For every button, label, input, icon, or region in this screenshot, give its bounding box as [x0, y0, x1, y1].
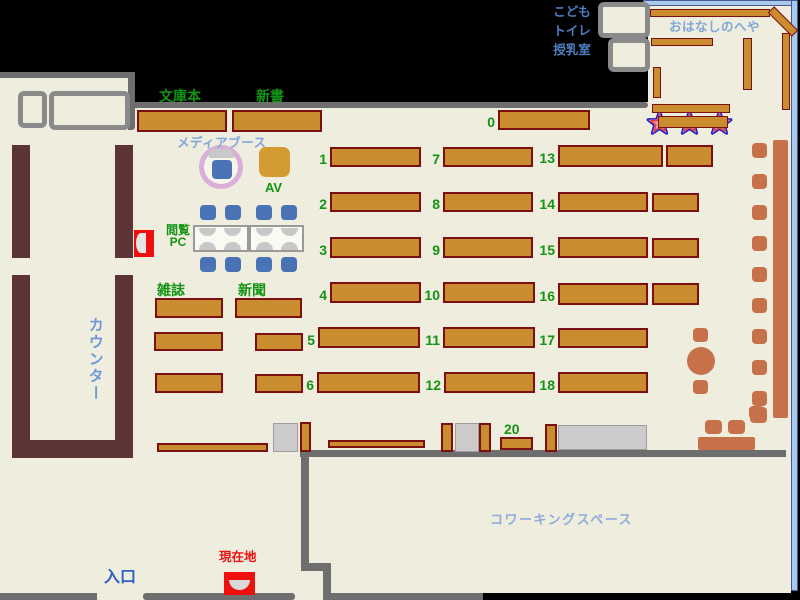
shelf-6: [317, 372, 420, 393]
shelf-label-3: 3: [297, 240, 327, 260]
shelf-label-16: 16: [525, 286, 555, 306]
wall-bottom-2: [143, 593, 295, 600]
window-wall-right: [791, 0, 798, 591]
stool: [752, 236, 767, 251]
reading-table: [698, 437, 755, 450]
shelf-label-20: 20: [504, 419, 530, 439]
story-room-shelf: [658, 116, 728, 128]
stool: [752, 143, 767, 158]
shelf-11: [443, 327, 535, 348]
shelf-label-8: 8: [410, 194, 440, 214]
bookshelf: [479, 423, 491, 452]
top-black-band: [135, 72, 648, 102]
wall-bottom-3: [323, 593, 483, 600]
shelf-label-12: 12: [411, 375, 441, 395]
bookshelf: [157, 443, 268, 452]
shelf-15: [558, 237, 648, 258]
shelf-1: [330, 147, 421, 167]
chair: [200, 205, 216, 220]
bookshelf: [255, 374, 303, 393]
shelf-label-14: 14: [525, 194, 555, 214]
bookshelf: [232, 110, 322, 132]
small-room: [49, 91, 130, 130]
label-av: AV: [265, 179, 282, 198]
stool: [752, 298, 767, 313]
shelf-12: [444, 372, 535, 393]
counter-segment: [12, 275, 30, 458]
small-room: [18, 91, 47, 128]
chair: [200, 257, 216, 272]
stool: [749, 406, 764, 419]
stool: [728, 420, 745, 434]
counter-segment: [12, 145, 30, 258]
shelf-4: [330, 282, 421, 303]
bookshelf: [652, 238, 699, 258]
bookshelf: [235, 298, 302, 318]
label-counter: カウンター: [84, 317, 106, 417]
shelf-label-7: 7: [410, 149, 440, 169]
label-kids-toilet-nursing: こども トイレ 授乳室: [546, 3, 598, 59]
bookshelf: [300, 422, 311, 452]
stool: [752, 360, 767, 375]
wall-bottom-1: [0, 593, 97, 600]
reading-table: [773, 140, 788, 418]
wall-coworking-left: [301, 450, 309, 570]
stool: [752, 174, 767, 189]
shelf-label-17: 17: [525, 330, 555, 350]
label-browsing-pc: 閲覧 PC: [163, 224, 193, 248]
library-floor-map: こども トイレ 授乳室 おはなしのへや 文庫本 新書 メディアブース AV 閲覧…: [0, 0, 800, 600]
shelf-label-11: 11: [410, 330, 440, 350]
story-room-shelf: [653, 67, 661, 98]
counter-segment: [115, 145, 133, 258]
security-gate-sensor: [136, 233, 146, 253]
label-media-booth: メディアブース: [177, 134, 267, 152]
chair: [225, 257, 241, 272]
chair: [281, 205, 297, 220]
shelf-label-18: 18: [525, 375, 555, 395]
bookshelf: [666, 145, 713, 167]
label-story-room: おはなしのへや: [669, 18, 760, 36]
wall-top-left-horizontal: [0, 72, 135, 78]
shelf-9: [443, 237, 533, 258]
shelf-13: [558, 145, 663, 167]
shelf-14: [558, 192, 648, 212]
label-entrance: 入口: [104, 566, 136, 589]
pc-monitor: [224, 242, 241, 250]
shelf-3: [330, 237, 421, 258]
pc-monitor: [281, 242, 298, 250]
story-room-shelf: [650, 9, 770, 17]
stool: [693, 380, 708, 394]
round-table: [687, 347, 715, 375]
label-paperback: 文庫本: [159, 86, 201, 106]
shelf-label-1: 1: [297, 149, 327, 169]
bookshelf: [155, 373, 223, 393]
shelf-2: [330, 192, 421, 212]
bookshelf: [441, 423, 453, 452]
bookshelf: [328, 440, 425, 448]
bookshelf: [154, 332, 223, 351]
shelf-label-2: 2: [297, 194, 327, 214]
pc-monitor: [256, 242, 273, 250]
shelf-5: [318, 327, 420, 348]
bottom-right-black-band: [483, 593, 800, 600]
counter-segment: [115, 275, 133, 458]
wall-top-long: [135, 102, 648, 108]
counter-segment: [12, 440, 133, 458]
stool: [752, 205, 767, 220]
shelf-label-15: 15: [525, 240, 555, 260]
shelf-8: [443, 192, 533, 212]
story-room-shelf: [652, 104, 730, 113]
stool: [752, 391, 767, 406]
equipment-box: [455, 423, 479, 452]
bookshelf: [652, 283, 699, 305]
equipment-box: [558, 425, 647, 450]
label-new-books: 新書: [256, 86, 284, 106]
window-wall-top: [643, 0, 798, 6]
shelf-label-10: 10: [410, 285, 440, 305]
shelf-18: [558, 372, 648, 393]
story-room-shelf: [743, 38, 752, 90]
label-current-location: 現在地: [219, 548, 257, 566]
stool: [705, 420, 722, 434]
stool: [693, 328, 708, 342]
chair: [212, 160, 232, 179]
small-room: [608, 38, 650, 72]
story-room-shelf: [782, 33, 790, 110]
wall-coworking-top: [300, 450, 786, 457]
chair: [281, 257, 297, 272]
shelf-10: [443, 282, 535, 303]
shelf-7: [443, 147, 533, 167]
shelf-label-9: 9: [410, 240, 440, 260]
chair: [256, 205, 272, 220]
chair: [256, 257, 272, 272]
story-room-shelf: [651, 38, 713, 46]
shelf-0: [498, 110, 590, 130]
bookshelf: [155, 298, 223, 318]
pc-monitor: [199, 242, 216, 250]
bookshelf: [545, 424, 557, 452]
shelf-label-13: 13: [525, 148, 555, 168]
shelf-16: [558, 283, 648, 305]
chair: [225, 205, 241, 220]
bookshelf: [652, 193, 699, 212]
bookshelf: [255, 333, 303, 351]
bookshelf: [137, 110, 227, 132]
shelf-17: [558, 328, 648, 348]
shelf-label-0: 0: [465, 112, 495, 132]
stool: [752, 267, 767, 282]
label-coworking: コワーキングスペース: [490, 511, 633, 530]
stool: [752, 329, 767, 344]
small-room: [598, 2, 650, 38]
equipment-box: [273, 423, 298, 452]
